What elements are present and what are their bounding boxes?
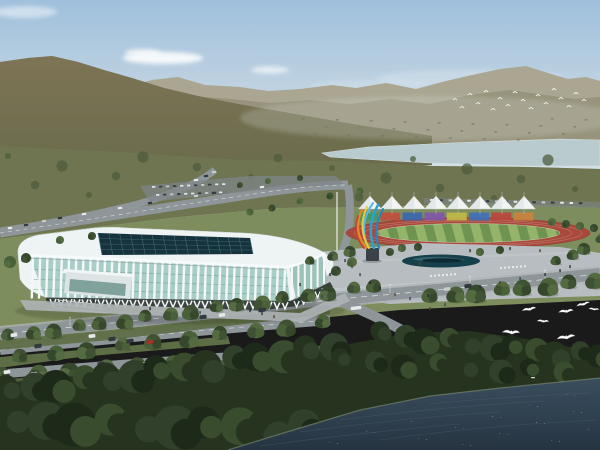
tree-clump — [436, 184, 445, 193]
car — [212, 192, 217, 195]
car — [464, 284, 471, 289]
car — [199, 315, 206, 320]
distant-building — [528, 132, 531, 134]
water-sparkle — [418, 438, 419, 439]
distant-building — [573, 126, 576, 128]
parked-car — [198, 192, 201, 194]
seagulls — [502, 301, 599, 340]
facade-rib — [205, 265, 206, 300]
pedestrian — [479, 285, 481, 288]
tree-clump — [410, 156, 416, 162]
pedestrian — [427, 294, 429, 297]
facade-rib — [39, 257, 40, 297]
car — [108, 337, 115, 342]
tree-clump — [86, 192, 92, 198]
tree — [583, 247, 590, 254]
dark-tree-canopy — [400, 362, 417, 379]
water-sparkle — [463, 428, 464, 429]
dark-tree-canopy — [53, 380, 76, 403]
car — [212, 171, 217, 174]
distant-building — [438, 122, 441, 124]
color-panel — [425, 213, 445, 221]
park-tree — [297, 177, 301, 181]
water-sparkle — [581, 412, 582, 413]
tree — [501, 286, 510, 295]
tree-clump — [461, 163, 472, 174]
tree-clump — [274, 154, 283, 163]
pedestrian — [569, 265, 571, 268]
parked-car — [170, 193, 173, 195]
seagull — [522, 307, 536, 312]
park-tree — [576, 225, 581, 230]
tree — [322, 319, 330, 327]
tree — [285, 326, 295, 336]
tree — [85, 348, 95, 358]
dark-tree-canopy — [509, 340, 522, 353]
water-sparkle — [462, 444, 463, 445]
tree-clump — [31, 181, 40, 190]
tree-clump — [542, 154, 553, 165]
distant-building — [302, 118, 305, 120]
car — [194, 195, 199, 198]
pedestrian — [449, 255, 451, 258]
seagull — [557, 334, 576, 340]
tree — [216, 305, 223, 312]
pedestrian — [379, 287, 381, 290]
pedestrian — [149, 307, 151, 310]
light-pole-lamp — [544, 270, 545, 271]
tree-clump — [5, 153, 11, 159]
dark-tree-canopy — [7, 411, 29, 433]
car — [58, 217, 63, 220]
facade-rib — [169, 263, 170, 299]
pedestrian — [519, 277, 521, 280]
seagull — [502, 329, 520, 334]
park-tree — [237, 184, 241, 188]
distant-building — [483, 138, 486, 140]
pedestrian — [249, 309, 251, 312]
facade-rib — [133, 262, 134, 299]
parked-car — [208, 184, 211, 186]
parked-car — [532, 201, 536, 203]
parked-car — [570, 202, 574, 204]
car — [82, 213, 87, 216]
car — [42, 220, 47, 223]
facade-rib — [226, 266, 227, 300]
park-tree — [4, 260, 11, 267]
parked-car — [191, 193, 194, 195]
parked-car — [156, 194, 159, 196]
parked-car — [219, 191, 222, 193]
seagull — [559, 309, 574, 313]
color-panel — [447, 213, 467, 221]
color-panel — [469, 213, 489, 221]
distant-building — [551, 118, 554, 120]
pedestrian — [359, 273, 361, 276]
distant-building — [505, 124, 508, 126]
color-panel — [513, 213, 533, 221]
pedestrian — [509, 247, 511, 250]
water-sparkle — [507, 434, 508, 435]
water-sparkle — [537, 406, 538, 407]
water-sparkle — [551, 440, 552, 441]
car — [258, 308, 265, 313]
facade-rib — [176, 264, 177, 300]
water-sparkle — [470, 445, 471, 446]
facade-rib — [147, 262, 148, 299]
tree-clump — [193, 163, 202, 172]
pedestrian — [559, 269, 561, 272]
tree — [236, 303, 244, 311]
tree — [349, 250, 356, 257]
tree — [124, 320, 133, 329]
light-pole-lamp — [389, 284, 390, 285]
distant-building — [585, 119, 588, 121]
dark-tree-canopy — [527, 364, 539, 376]
parked-car — [194, 184, 197, 186]
tree — [309, 259, 314, 264]
water-sparkle — [366, 431, 367, 432]
facade-rib — [212, 266, 213, 301]
water-sparkle — [455, 427, 456, 428]
distant-building — [517, 139, 520, 141]
dark-tree-canopy — [465, 338, 481, 354]
dark-tree-canopy — [202, 360, 225, 383]
tree — [455, 292, 465, 302]
park-tree — [562, 223, 567, 228]
parked-car — [152, 186, 155, 188]
tree — [475, 291, 486, 302]
distant-building — [415, 136, 418, 138]
pool-dark-form — [422, 258, 462, 262]
parked-car — [187, 185, 190, 187]
park-tree — [56, 239, 61, 244]
dark-tree-canopy — [373, 358, 388, 373]
distant-building — [313, 133, 316, 135]
car — [24, 224, 29, 227]
tree — [188, 337, 198, 347]
tree — [568, 280, 577, 289]
parked-car — [222, 183, 225, 185]
facade-rib — [269, 268, 270, 301]
pedestrian — [199, 311, 201, 314]
pedestrian — [299, 283, 301, 286]
pedestrian — [499, 281, 501, 284]
dark-tree-canopy — [153, 362, 170, 379]
seagull — [589, 307, 600, 311]
tree — [122, 342, 130, 350]
tree — [547, 284, 558, 295]
parked-car — [163, 194, 166, 196]
water-sparkle — [499, 433, 500, 434]
cloud — [125, 49, 161, 57]
tree — [353, 286, 360, 293]
water-sparkle — [573, 411, 574, 412]
tree-clump — [517, 175, 526, 184]
park-tree — [548, 221, 553, 226]
parked-car — [159, 186, 162, 188]
water-sparkle — [566, 394, 567, 395]
park-tree — [265, 180, 269, 184]
parked-car — [514, 201, 518, 203]
parked-car — [542, 201, 546, 203]
tree — [152, 340, 161, 349]
distant-building — [347, 134, 350, 136]
dark-tree-canopy — [464, 363, 479, 378]
parked-car — [486, 200, 490, 202]
facade-rib — [197, 265, 198, 300]
distant-building — [404, 121, 407, 123]
color-panel — [380, 213, 400, 221]
car — [260, 186, 265, 189]
facade-rib — [32, 257, 33, 298]
parked-car — [166, 185, 169, 187]
facade-rib — [161, 263, 162, 299]
distant-building — [426, 129, 429, 131]
pedestrian — [394, 293, 396, 296]
park-tree — [269, 207, 273, 211]
tree — [190, 310, 199, 319]
parked-car — [205, 192, 208, 194]
distant-building — [370, 120, 373, 122]
tree — [144, 314, 151, 321]
park-tree — [398, 247, 403, 252]
car — [443, 287, 450, 292]
parked-car — [579, 202, 583, 204]
car — [10, 333, 17, 338]
rendering-canvas — [0, 0, 600, 450]
park-tree — [297, 200, 301, 204]
parked-car — [215, 183, 218, 185]
car — [194, 179, 199, 182]
distant-building — [562, 133, 565, 135]
tree-clump — [137, 151, 148, 162]
water-sparkle — [426, 439, 427, 440]
car — [3, 370, 10, 375]
facade-rib — [61, 258, 62, 298]
car — [148, 202, 153, 205]
car — [88, 334, 95, 339]
color-panel — [491, 213, 511, 221]
facade-rib — [255, 268, 256, 301]
light-pole-lamp — [469, 276, 470, 277]
parked-car — [177, 193, 180, 195]
tree — [170, 312, 178, 320]
tree — [53, 329, 62, 338]
distant-building — [336, 119, 339, 121]
facade-rib — [190, 265, 191, 300]
pedestrian — [544, 273, 546, 276]
distant-building — [472, 123, 475, 125]
park-tree — [88, 235, 93, 240]
pedestrian — [93, 300, 95, 303]
facade-rib — [53, 258, 54, 298]
pedestrian — [369, 281, 371, 284]
tree — [521, 285, 531, 295]
park-tree — [414, 246, 419, 251]
park-tree — [590, 227, 595, 232]
tree — [429, 293, 438, 302]
tree — [307, 293, 315, 301]
parked-car — [467, 200, 471, 202]
car — [34, 344, 41, 349]
water-sparkle — [374, 432, 375, 433]
dark-tree-canopy — [421, 336, 439, 354]
tree — [282, 295, 289, 302]
park-tree — [496, 249, 501, 254]
parked-car — [173, 185, 176, 187]
parked-car — [201, 184, 204, 186]
facade-rib — [241, 267, 242, 301]
water-sparkle — [588, 429, 589, 430]
park-tree — [357, 190, 361, 194]
park-tree — [327, 195, 331, 199]
small-boat — [531, 377, 535, 378]
car — [218, 313, 225, 318]
park-tree — [386, 251, 391, 256]
tree-clump — [380, 172, 391, 183]
facade-rib — [154, 263, 155, 300]
tree — [327, 291, 336, 300]
car — [8, 227, 13, 230]
tree-clump — [329, 165, 335, 171]
water-sparkle — [329, 442, 330, 443]
distant-building — [449, 137, 452, 139]
car — [118, 207, 123, 210]
pedestrian — [444, 303, 446, 306]
dark-tree-canopy — [437, 359, 449, 371]
tree-clump — [112, 172, 121, 181]
distant-building — [325, 126, 328, 128]
facade-rib — [46, 258, 47, 298]
water-sparkle — [337, 443, 338, 444]
cloud — [251, 67, 289, 74]
parked-car — [560, 202, 564, 204]
distant-building — [392, 128, 395, 130]
facade-rib — [248, 267, 249, 301]
tree — [555, 259, 561, 265]
water-sparkle — [574, 395, 575, 396]
water-sparkle — [529, 405, 530, 406]
pedestrian — [419, 262, 421, 265]
seagull — [537, 319, 549, 323]
pedestrian — [429, 307, 431, 310]
dark-tree-canopy — [499, 367, 516, 384]
water-sparkle — [492, 416, 493, 417]
pedestrian — [539, 249, 541, 252]
water-sparkle — [536, 422, 537, 423]
water-sparkle — [500, 417, 501, 418]
aerial-rendering — [0, 0, 600, 450]
tree — [19, 353, 27, 361]
car — [146, 340, 153, 345]
dark-tree-canopy — [303, 343, 320, 360]
facade-rib — [183, 264, 184, 300]
pedestrian — [337, 267, 339, 270]
park-tree — [247, 211, 251, 215]
facade-rib — [219, 266, 220, 301]
distant-building — [494, 131, 497, 133]
tree — [332, 255, 338, 261]
tree — [55, 351, 64, 360]
dark-tree-canopy — [338, 353, 350, 365]
sculpture-pedestal — [366, 248, 379, 261]
water-sparkle — [544, 423, 545, 424]
dark-tree-canopy — [4, 382, 21, 399]
water-sparkle — [559, 441, 560, 442]
facade-rib — [233, 267, 234, 301]
pedestrian — [311, 289, 313, 292]
parked-car — [449, 199, 453, 201]
pedestrian — [85, 297, 87, 300]
striped-infield — [376, 224, 560, 243]
car — [204, 175, 209, 178]
parked-car — [180, 185, 183, 187]
distant-building — [381, 135, 384, 137]
dark-tree-canopy — [200, 416, 222, 438]
pedestrian — [273, 315, 275, 318]
facade-rib — [140, 262, 141, 299]
water-sparkle — [411, 421, 412, 422]
pedestrian — [351, 265, 353, 268]
park-tree — [331, 270, 337, 276]
pedestrian — [409, 297, 411, 300]
tree-clump — [572, 186, 578, 192]
pedestrian — [344, 259, 346, 262]
pedestrian — [329, 273, 331, 276]
tree-clump — [56, 160, 67, 171]
car — [126, 339, 133, 344]
distant-building — [359, 127, 362, 129]
park-tree — [21, 257, 27, 263]
parked-car — [184, 193, 187, 195]
pedestrian — [321, 295, 323, 298]
pedestrian — [261, 312, 263, 315]
tree — [79, 323, 86, 330]
tree — [98, 321, 106, 329]
parked-car — [551, 202, 555, 204]
distant-building — [460, 130, 463, 132]
pedestrian — [469, 249, 471, 252]
tree — [255, 328, 264, 337]
color-panel — [402, 213, 422, 221]
seagull — [576, 301, 590, 307]
park-tree — [476, 251, 481, 256]
tree — [33, 331, 41, 339]
dark-tree-canopy — [378, 327, 391, 340]
distant-building — [539, 125, 542, 127]
tree — [572, 253, 578, 259]
tree — [219, 331, 227, 339]
